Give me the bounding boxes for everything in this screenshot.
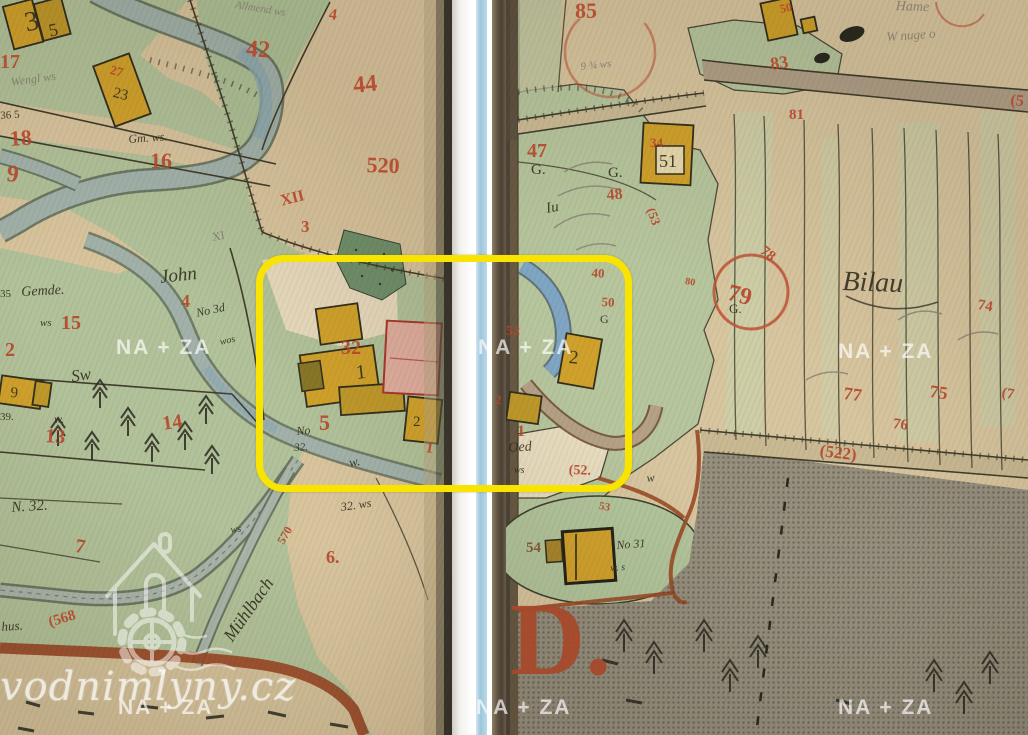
scanned-map: 3517Wengl ws36 51892723Gm. ws.16Allmend … [0, 0, 1028, 735]
highlight-box [256, 255, 632, 492]
